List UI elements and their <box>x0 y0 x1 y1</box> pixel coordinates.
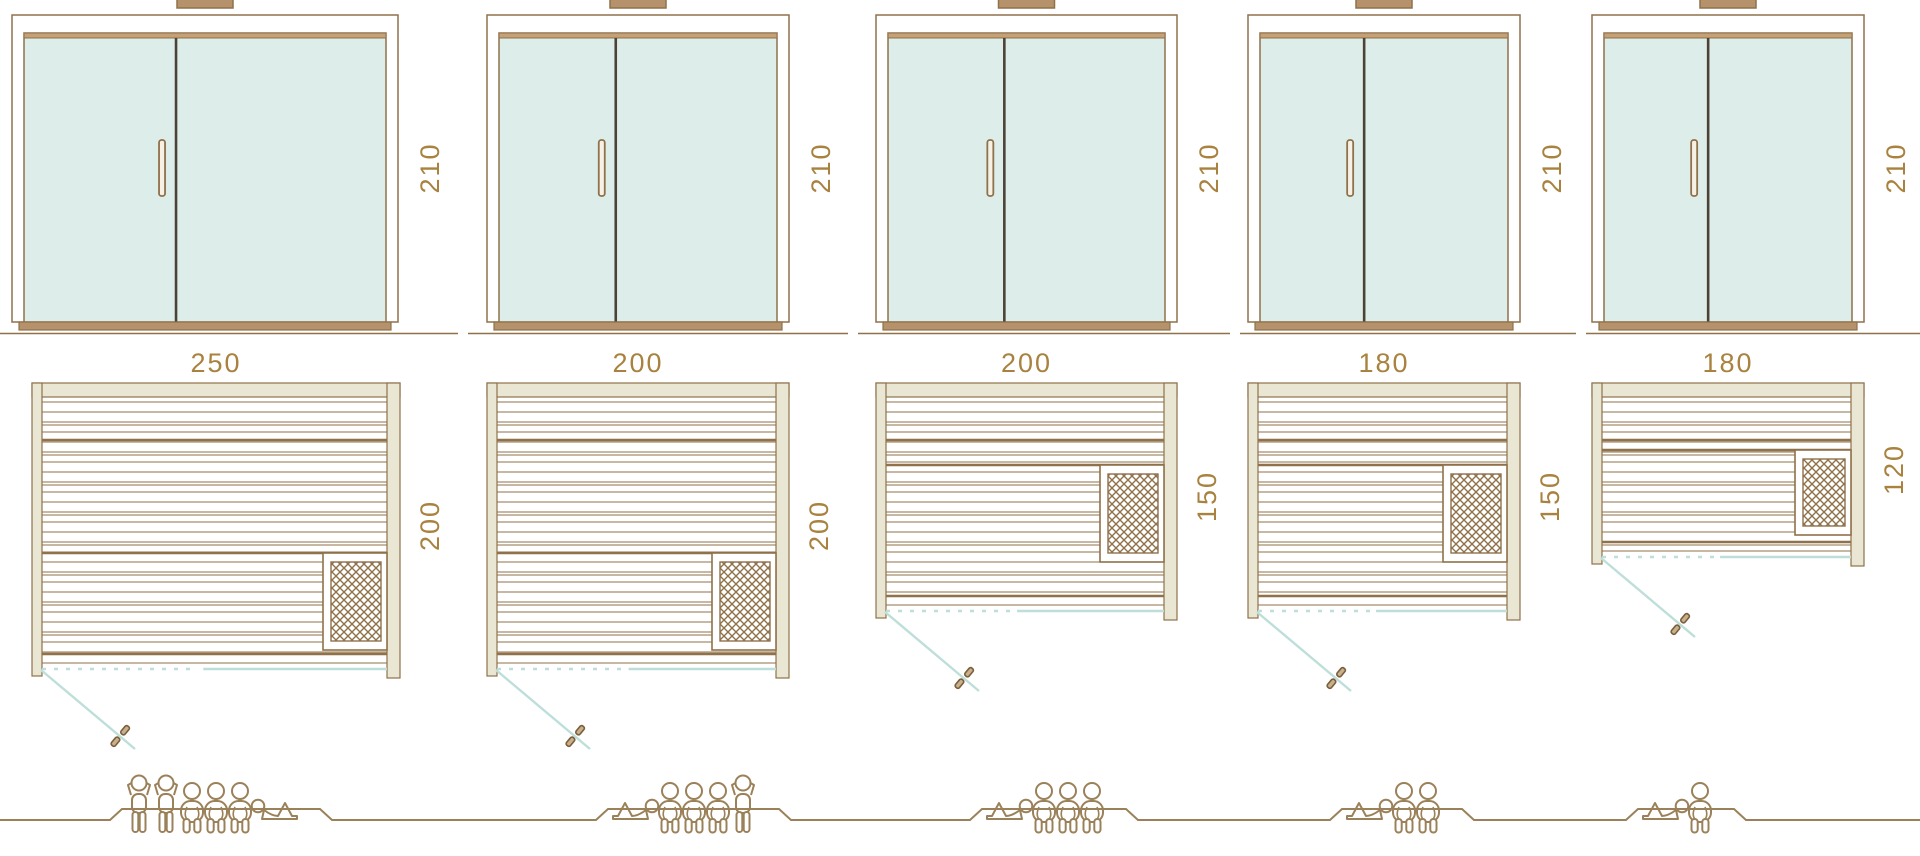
threshold <box>883 322 1170 330</box>
roof-vent-icon <box>1700 0 1756 8</box>
back-wall <box>1248 383 1520 397</box>
door-elevation: 210 <box>1240 0 1576 334</box>
capacity-pictograms <box>613 776 754 833</box>
roof-vent-icon <box>177 0 233 8</box>
floor-plan: 200200 <box>487 348 834 749</box>
seated-person-icon <box>659 783 681 833</box>
threshold <box>1255 322 1513 330</box>
door-height-label: 210 <box>1881 142 1911 193</box>
glass-panels <box>888 33 1165 322</box>
capacity-pictograms <box>1643 783 1711 833</box>
right-wall <box>776 383 789 678</box>
door-height-label: 210 <box>1537 142 1567 193</box>
roof-vent-icon <box>1356 0 1412 8</box>
plan-depth-label: 150 <box>1192 471 1222 522</box>
floor-plan: 180120 <box>1592 348 1909 637</box>
door-height-label: 210 <box>1194 142 1224 193</box>
seated-person-icon <box>181 783 203 833</box>
sauna-column-3: 210200150 <box>858 0 1230 833</box>
glass-panels <box>1260 33 1508 322</box>
door-handle-icon <box>1347 140 1353 196</box>
back-wall <box>1592 383 1864 397</box>
door-elevation: 210 <box>1586 0 1920 334</box>
capacity-pictograms <box>1347 783 1439 833</box>
standing-person-icon <box>732 776 754 833</box>
sauna-column-2: 210200200 <box>468 0 848 833</box>
right-wall <box>1164 383 1177 620</box>
right-wall <box>1851 383 1864 566</box>
plan-depth-label: 150 <box>1535 471 1565 522</box>
door-swing-icon <box>1257 612 1351 691</box>
threshold <box>494 322 782 330</box>
glass-panels <box>1604 33 1852 322</box>
plan-width-label: 250 <box>190 348 241 378</box>
heater-grid-icon <box>323 553 387 650</box>
door-swing-icon <box>496 670 590 749</box>
door-height-label: 210 <box>415 142 445 193</box>
plan-width-label: 180 <box>1358 348 1409 378</box>
plan-width-label: 200 <box>612 348 663 378</box>
plan-depth-label: 200 <box>415 500 445 551</box>
left-wall <box>32 383 42 676</box>
seated-person-icon <box>683 783 705 833</box>
sauna-column-4: 210180150 <box>1240 0 1576 833</box>
heater-grid-icon <box>1443 465 1507 562</box>
seated-person-icon <box>229 783 251 833</box>
back-wall <box>487 383 789 397</box>
standing-person-icon <box>155 776 177 833</box>
seated-person-icon <box>205 783 227 833</box>
roof-vent-icon <box>999 0 1055 8</box>
sauna-size-diagram: 2102502002102002002102001502101801502101… <box>0 0 1920 856</box>
heater-grid-icon <box>1795 450 1851 535</box>
seated-person-icon <box>1033 783 1055 833</box>
right-wall <box>1507 383 1520 620</box>
door-swing-icon <box>41 670 135 749</box>
left-wall <box>1592 383 1602 564</box>
left-wall <box>876 383 886 618</box>
roof-vent-icon <box>610 0 666 8</box>
door-swing-icon <box>885 612 979 691</box>
door-elevation: 210 <box>858 0 1230 334</box>
plan-depth-label: 200 <box>804 500 834 551</box>
door-elevation: 210 <box>0 0 458 334</box>
glass-panels <box>499 33 777 322</box>
diagram-canvas: 2102502002102002002102001502101801502101… <box>0 0 1920 856</box>
seated-person-icon <box>707 783 729 833</box>
threshold <box>1599 322 1857 330</box>
sauna-column-1: 210250200 <box>0 0 458 833</box>
floor-plan: 250200 <box>32 348 445 749</box>
plan-width-label: 200 <box>1001 348 1052 378</box>
glass-panels <box>24 33 386 322</box>
heater-grid-icon <box>1100 465 1164 562</box>
sauna-column-5: 210180120 <box>1586 0 1920 833</box>
plan-width-label: 180 <box>1702 348 1753 378</box>
door-elevation: 210 <box>468 0 848 334</box>
seated-person-icon <box>1689 783 1711 833</box>
back-wall <box>32 383 400 397</box>
seated-person-icon <box>1057 783 1079 833</box>
floor-plan: 180150 <box>1248 348 1565 691</box>
door-height-label: 210 <box>806 142 836 193</box>
capacity-pictograms <box>987 783 1103 833</box>
door-handle-icon <box>599 140 605 196</box>
door-swing-icon <box>1601 558 1695 637</box>
seated-person-icon <box>1417 783 1439 833</box>
threshold <box>19 322 391 330</box>
seated-person-icon <box>1081 783 1103 833</box>
door-handle-icon <box>987 140 993 196</box>
floor-plan: 200150 <box>876 348 1222 691</box>
door-handle-icon <box>159 140 165 196</box>
door-handle-icon <box>1691 140 1697 196</box>
heater-grid-icon <box>712 553 776 650</box>
left-wall <box>1248 383 1258 618</box>
standing-person-icon <box>128 776 150 833</box>
seated-person-icon <box>1393 783 1415 833</box>
plan-depth-label: 120 <box>1879 444 1909 495</box>
back-wall <box>876 383 1177 397</box>
left-wall <box>487 383 497 676</box>
capacity-pictograms <box>128 776 297 833</box>
right-wall <box>387 383 400 678</box>
